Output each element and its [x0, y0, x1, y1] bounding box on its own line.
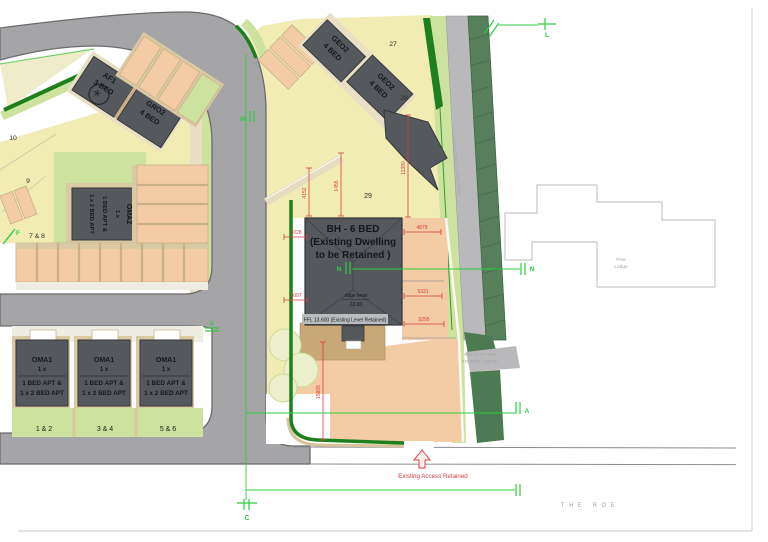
- dim-5295: 5295: [418, 317, 429, 323]
- marker-N1: N: [337, 266, 342, 273]
- site-plan-sheet: * AF1 3 BED GRO2 4 BED GEO2 4 BED GEO2 4…: [0, 0, 768, 542]
- row-tree-lower: [470, 370, 504, 443]
- oma1-unit-1: OMA1 1 x 1 BED APT & 1 x 2 BED APT: [12, 330, 70, 410]
- garden-label-1-2: 1 & 2: [36, 426, 52, 433]
- oma1a-l1: OMA1: [32, 357, 52, 364]
- building-bh: BH - 6 BED (Existing Dwelling to be Reta…: [302, 218, 402, 325]
- oma1c-l4: 1 x 2 BED APT: [144, 390, 188, 397]
- garden-oma2-side: [54, 180, 68, 246]
- marker-E: E: [210, 321, 214, 327]
- pine-lodge-label1: Pine: [616, 257, 626, 263]
- parking-court-white: [266, 394, 330, 444]
- oma1b-l2: 1 x: [100, 367, 109, 373]
- oma1c-l1: OMA1: [156, 357, 176, 364]
- oma1-row: OMA1 1 x 1 BED APT & 1 x 2 BED APT OMA1 …: [12, 326, 203, 437]
- bh-ffl-label: FFL 13.600 (Existing Level Retained): [304, 318, 387, 324]
- outbuilding: [342, 326, 364, 341]
- plot-29: 29: [364, 193, 372, 200]
- oma1a-l2: 1 x: [38, 367, 47, 373]
- row-note-line1: RIGHT OF WAY: [464, 352, 497, 357]
- existing-access: Existing Access Retained: [398, 441, 468, 480]
- marker-C: C: [244, 515, 249, 522]
- garden-label-5-6: 5 & 6: [160, 426, 176, 433]
- garden-label-3-4: 3 & 4: [97, 426, 113, 433]
- pine-lodge: Pine Lodge: [505, 185, 715, 287]
- oma2-label-line2: 1 x: [114, 210, 120, 219]
- oma1b-l1: OMA1: [94, 357, 114, 364]
- dim-11380: 11380: [401, 161, 407, 175]
- site-plan-drawing: * AF1 3 BED GRO2 4 BED GEO2 4 BED GEO2 4…: [0, 0, 768, 542]
- oma1-unit-3: OMA1 1 x 1 BED APT & 1 x 2 BED APT: [136, 330, 194, 410]
- plot-10: 10: [9, 135, 17, 142]
- dim-4879: 4879: [416, 225, 427, 231]
- oma1a-l3: 1 BED APT &: [22, 380, 62, 387]
- marker-A: A: [525, 408, 530, 415]
- street-name-label: THE ROE: [561, 503, 619, 509]
- access-gap: [404, 441, 434, 452]
- oma2-label-line1: OMA2: [125, 204, 132, 224]
- oma2-block: OMA2 1 x 1 BED APT & 1 x 2 BED APT: [66, 183, 143, 246]
- marker-N2: N: [530, 266, 535, 273]
- plot-9: 9: [26, 178, 30, 185]
- bh-label-line1: BH - 6 BED: [327, 224, 380, 235]
- bh-label-line3: to be Retained ): [315, 250, 390, 261]
- dim-1455: 1455: [334, 180, 340, 191]
- oma2-label-line4: 1 x 2 BED APT: [88, 194, 94, 234]
- bh-ridge-value: 22.00: [350, 302, 363, 308]
- bh-label-line2: (Existing Dwelling: [310, 237, 396, 248]
- pine-lodge-label2: Lodge: [614, 264, 628, 270]
- oma1c-l3: 1 BED APT &: [146, 380, 186, 387]
- bh-ridge-label: ridge level: [345, 293, 368, 299]
- oma1b-l3: 1 BED APT &: [84, 380, 124, 387]
- row-note-line2: TO PINE LODGE: [462, 359, 498, 364]
- access-label: Existing Access Retained: [398, 473, 468, 480]
- marker-F: F: [16, 230, 20, 237]
- access-arrow-icon: [414, 450, 430, 468]
- marker-M: M: [240, 116, 245, 123]
- dim-4152: 4152: [302, 187, 308, 198]
- outbuilding-step: [346, 341, 361, 349]
- oma1-unit-2: OMA1 1 x 1 BED APT & 1 x 2 BED APT: [74, 330, 132, 410]
- oma2-label-line3: 1 BED APT &: [101, 196, 107, 232]
- existing-road-the-roe: [294, 447, 736, 465]
- oma1b-l4: 1 x 2 BED APT: [82, 390, 126, 397]
- dim-3028: 3028: [290, 230, 301, 236]
- marker-L: L: [545, 32, 549, 39]
- plot-7-8: 7 & 8: [29, 233, 45, 240]
- oma1c-l2: 1 x: [162, 367, 171, 373]
- parking-court-side: [132, 165, 208, 243]
- oma1a-l4: 1 x 2 BED APT: [20, 390, 64, 397]
- dim-3097: 3097: [290, 293, 301, 299]
- parking-row-bottom: [16, 243, 208, 290]
- plot-27: 27: [389, 41, 397, 48]
- dim-5331: 5331: [417, 289, 428, 295]
- dim-15805: 15805: [316, 385, 322, 399]
- plot-28: 28: [400, 95, 408, 102]
